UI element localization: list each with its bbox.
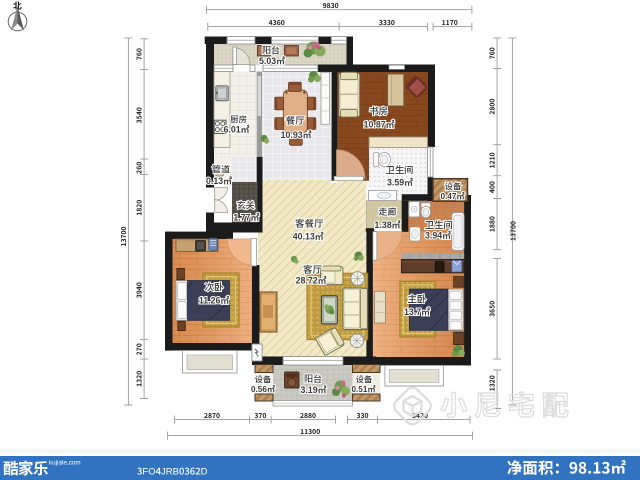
svg-text:760: 760 — [487, 47, 497, 59]
svg-text:kujiale.com: kujiale.com — [49, 458, 81, 467]
svg-text:370: 370 — [254, 410, 266, 420]
svg-text:0.47㎡: 0.47㎡ — [440, 191, 465, 201]
svg-text:阳台: 阳台 — [304, 372, 322, 385]
svg-text:设备: 设备 — [355, 374, 373, 386]
svg-text:3FO4JRB0362D: 3FO4JRB0362D — [137, 464, 208, 478]
svg-text:40.13㎡: 40.13㎡ — [293, 231, 324, 242]
svg-text:书房: 书房 — [369, 104, 388, 118]
svg-text:6.01㎡: 6.01㎡ — [224, 124, 250, 135]
svg-text:2870: 2870 — [204, 410, 220, 420]
svg-text:10.93㎡: 10.93㎡ — [281, 129, 312, 140]
svg-text:3330: 3330 — [379, 17, 395, 27]
svg-text:1210: 1210 — [487, 152, 497, 168]
svg-text:3.19㎡: 3.19㎡ — [301, 384, 327, 395]
svg-text:卫生间: 卫生间 — [424, 218, 453, 232]
svg-text:主卧: 主卧 — [407, 292, 427, 306]
svg-text:1320: 1320 — [134, 371, 144, 387]
svg-text:设备: 设备 — [444, 181, 462, 193]
svg-text:0.51㎡: 0.51㎡ — [351, 384, 376, 394]
svg-text:玄关: 玄关 — [237, 199, 255, 212]
svg-text:客餐厅: 客餐厅 — [295, 216, 324, 230]
svg-text:1880: 1880 — [487, 216, 497, 232]
svg-text:3650: 3650 — [487, 301, 497, 317]
svg-text:10.87㎡: 10.87㎡ — [364, 119, 395, 130]
svg-text:3.59㎡: 3.59㎡ — [387, 177, 413, 188]
svg-text:走廊: 走廊 — [378, 205, 396, 218]
svg-text:酷家乐: 酷家乐 — [3, 457, 48, 479]
svg-text:400: 400 — [487, 181, 497, 193]
svg-text:260: 260 — [134, 162, 144, 174]
svg-text:28.72㎡: 28.72㎡ — [296, 275, 327, 286]
svg-text:4360: 4360 — [269, 17, 285, 27]
svg-text:1820: 1820 — [134, 200, 144, 216]
svg-text:管道: 管道 — [212, 162, 230, 175]
svg-text:11300: 11300 — [300, 426, 320, 436]
svg-text:阳台: 阳台 — [262, 44, 280, 57]
svg-text:小尼宅配: 小尼宅配 — [440, 384, 576, 423]
svg-text:0.13㎡: 0.13㎡ — [206, 175, 232, 186]
svg-text:餐厅: 餐厅 — [286, 113, 306, 127]
svg-text:设备: 设备 — [254, 374, 272, 386]
svg-text:3540: 3540 — [134, 107, 144, 123]
svg-text:13.7㎡: 13.7㎡ — [404, 306, 430, 317]
svg-text:13700: 13700 — [508, 221, 518, 241]
svg-text:3.94㎡: 3.94㎡ — [425, 230, 451, 241]
svg-text:270: 270 — [134, 343, 144, 355]
svg-text:11.26㎡: 11.26㎡ — [199, 295, 230, 306]
svg-text:2800: 2800 — [487, 99, 497, 115]
svg-text:3940: 3940 — [134, 282, 144, 298]
svg-text:760: 760 — [134, 48, 144, 60]
svg-text:1.77㎡: 1.77㎡ — [233, 211, 259, 222]
svg-text:13700: 13700 — [118, 226, 128, 246]
svg-text:5.03㎡: 5.03㎡ — [259, 55, 285, 66]
svg-text:0.56㎡: 0.56㎡ — [251, 384, 276, 394]
svg-text:净面积：98.13㎡: 净面积：98.13㎡ — [507, 457, 627, 479]
svg-text:1.38㎡: 1.38㎡ — [375, 219, 401, 230]
svg-text:330: 330 — [356, 410, 368, 420]
svg-text:9830: 9830 — [323, 0, 339, 10]
svg-text:次卧: 次卧 — [204, 280, 224, 294]
svg-text:卫生间: 卫生间 — [385, 163, 414, 177]
svg-text:客厅: 客厅 — [303, 262, 323, 276]
svg-text:2880: 2880 — [300, 410, 316, 420]
svg-text:1170: 1170 — [442, 17, 458, 27]
